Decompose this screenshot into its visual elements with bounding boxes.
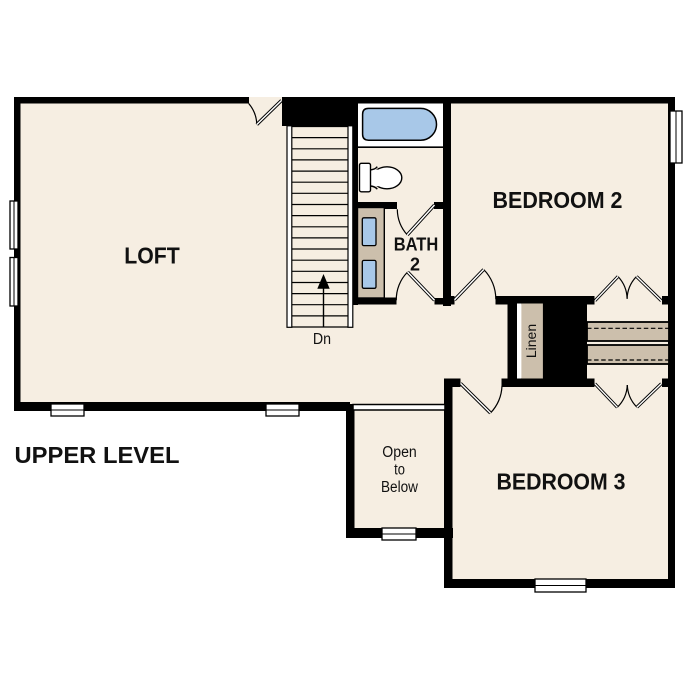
svg-text:2: 2 (410, 254, 420, 274)
svg-text:BATH: BATH (394, 235, 439, 255)
svg-text:BEDROOM 2: BEDROOM 2 (493, 187, 623, 213)
svg-text:Open: Open (382, 444, 417, 461)
svg-text:Below: Below (381, 479, 419, 496)
svg-text:BEDROOM 3: BEDROOM 3 (497, 468, 626, 494)
svg-text:LOFT: LOFT (124, 242, 180, 268)
svg-text:to: to (394, 462, 405, 479)
svg-text:UPPER LEVEL: UPPER LEVEL (15, 442, 180, 468)
svg-text:Linen: Linen (523, 324, 539, 358)
svg-text:Dn: Dn (313, 331, 331, 348)
